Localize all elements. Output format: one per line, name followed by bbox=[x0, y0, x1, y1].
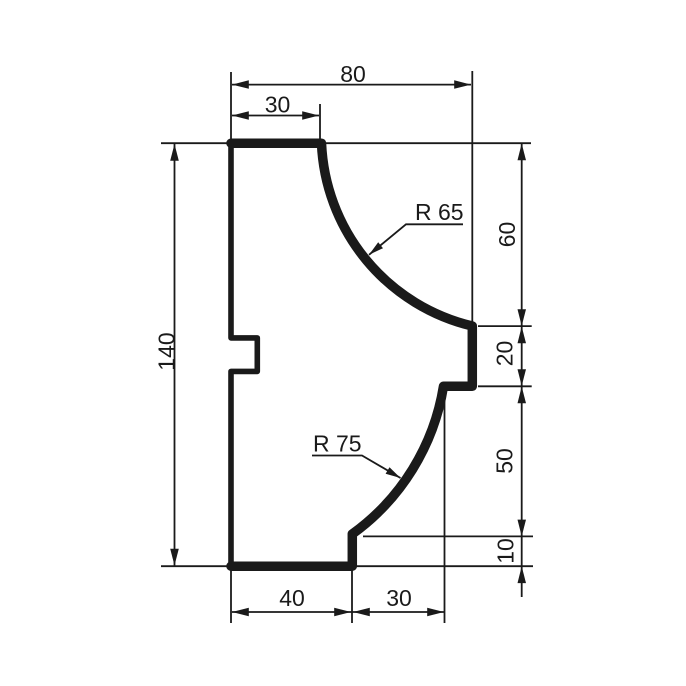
svg-text:30: 30 bbox=[386, 585, 412, 611]
svg-text:20: 20 bbox=[491, 341, 517, 367]
svg-text:60: 60 bbox=[494, 222, 520, 248]
svg-text:50: 50 bbox=[491, 448, 517, 474]
svg-text:40: 40 bbox=[279, 585, 305, 611]
svg-text:R 65: R 65 bbox=[415, 199, 464, 225]
svg-text:30: 30 bbox=[265, 92, 291, 118]
svg-text:R 75: R 75 bbox=[313, 431, 362, 457]
svg-text:140: 140 bbox=[153, 332, 179, 370]
svg-text:10: 10 bbox=[492, 538, 518, 564]
svg-text:80: 80 bbox=[340, 61, 366, 87]
